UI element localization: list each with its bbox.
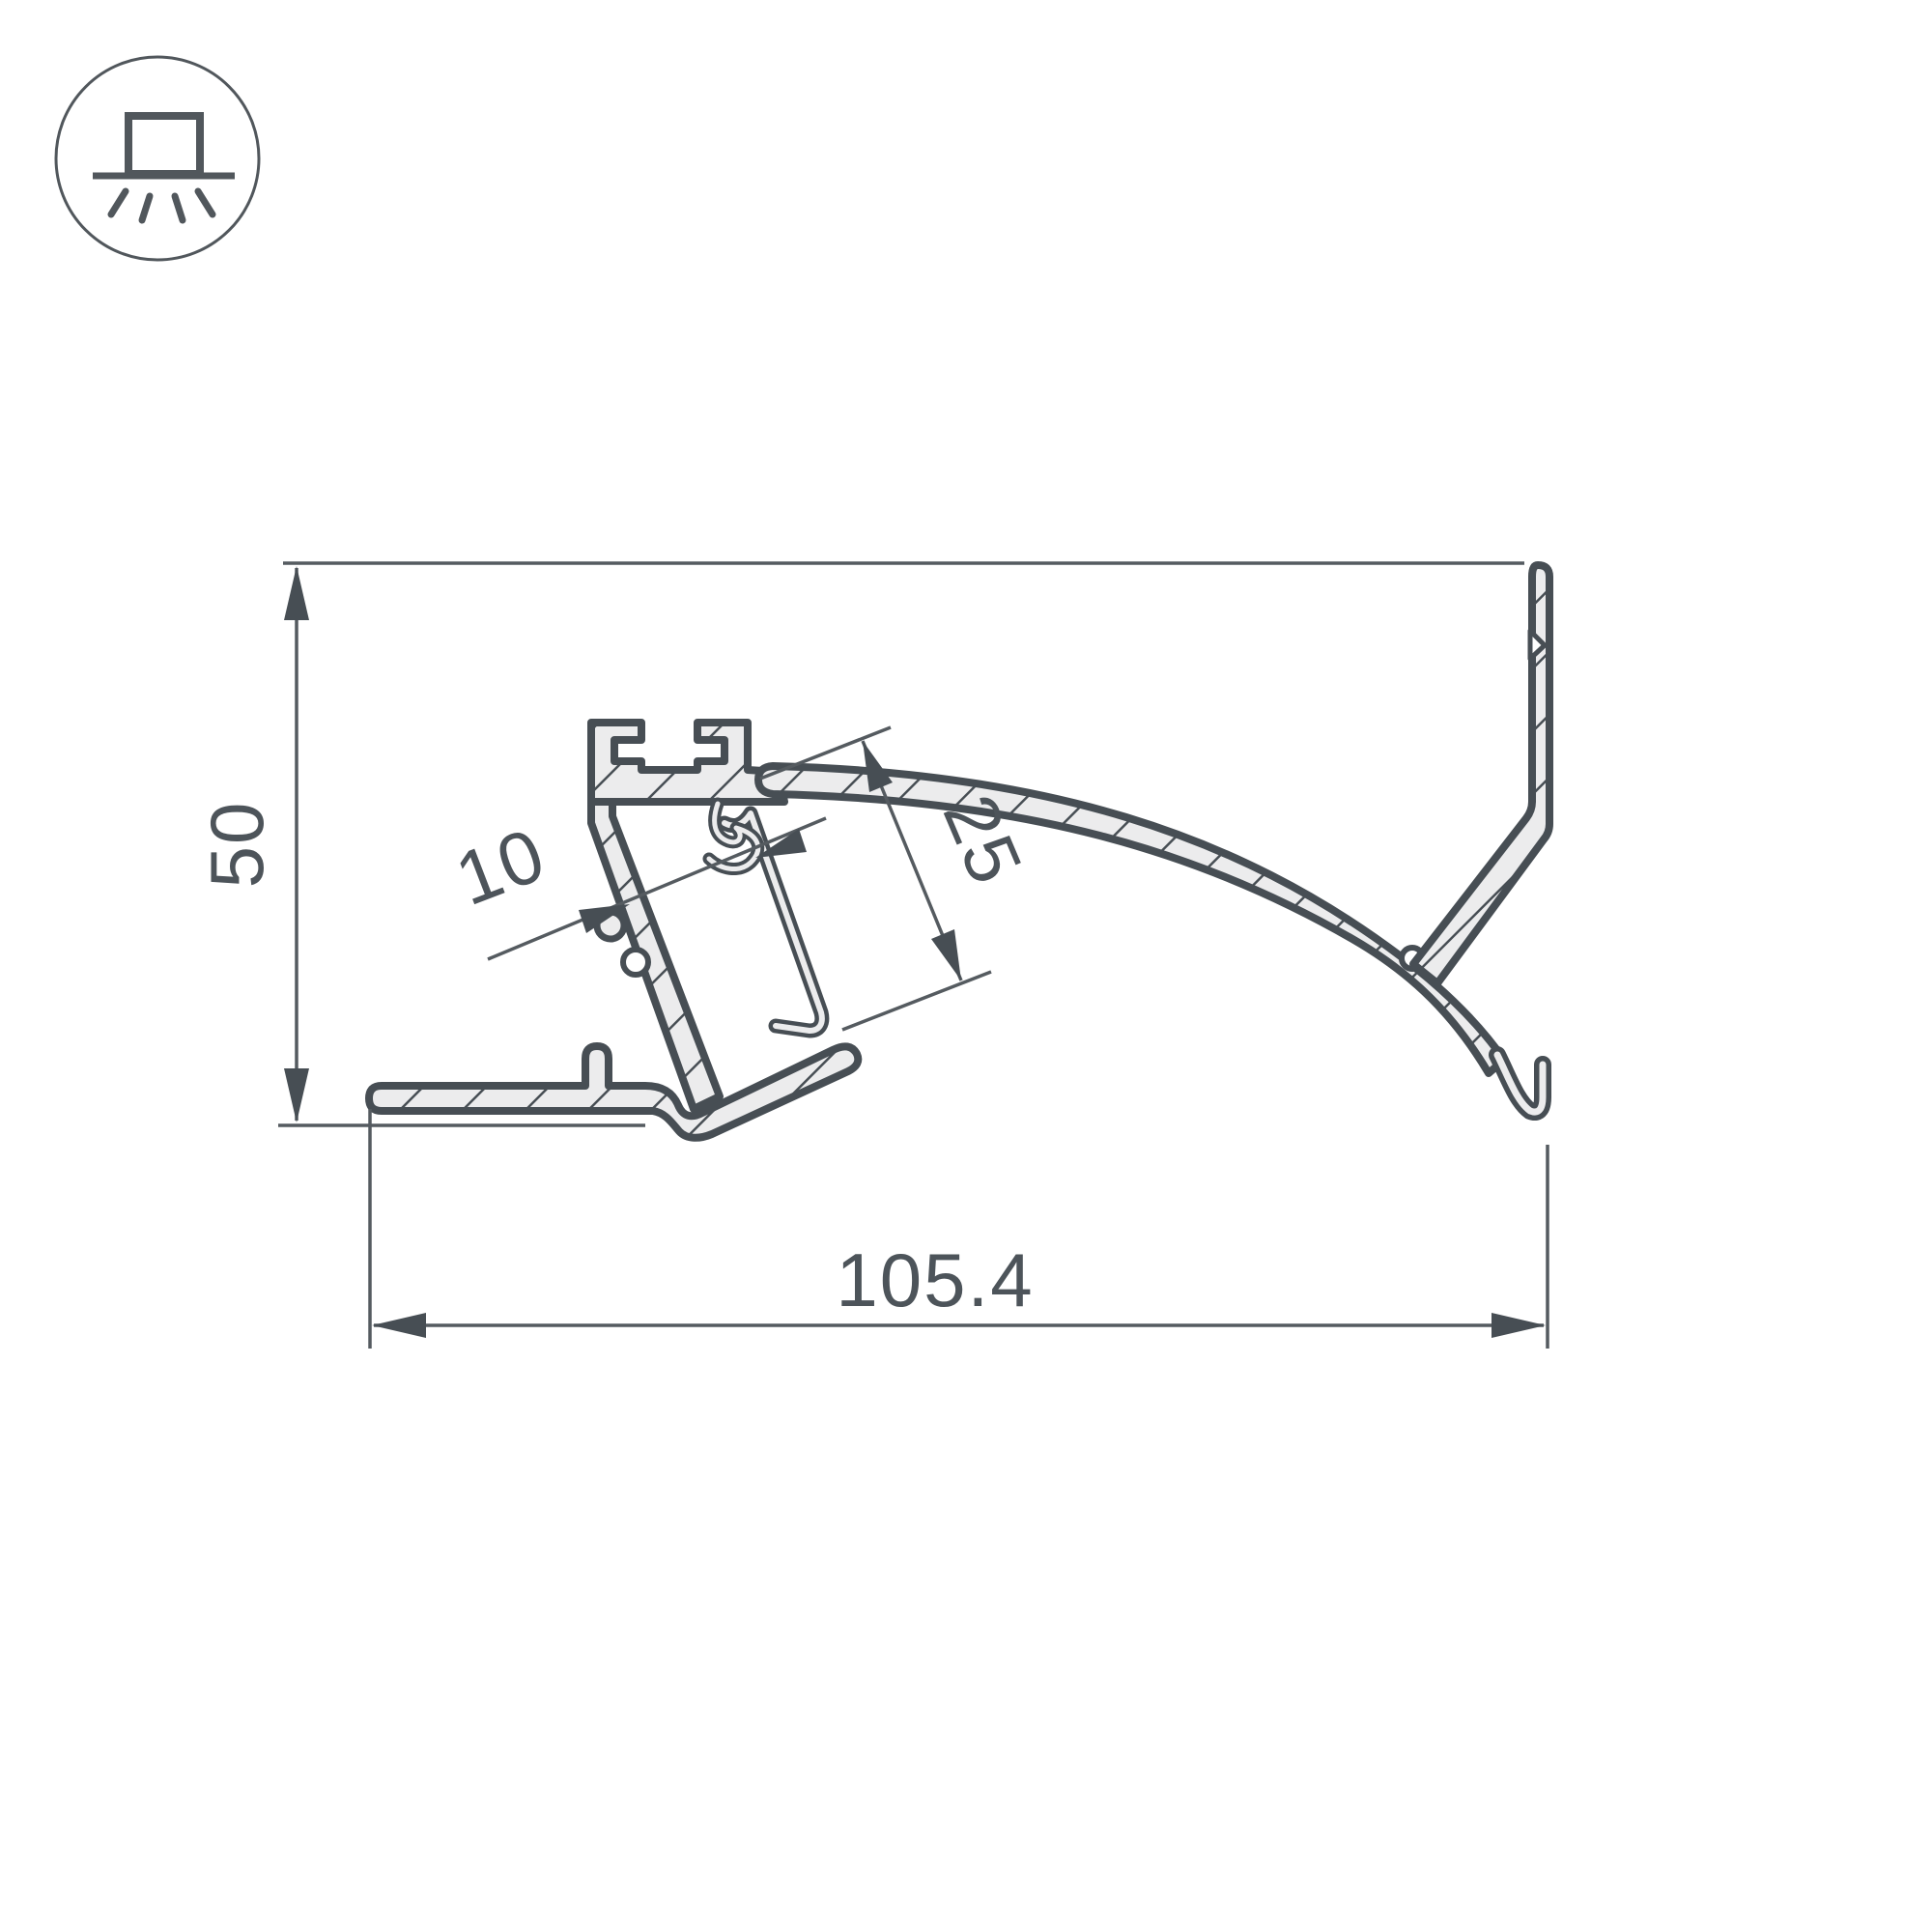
arrow-down-icon — [931, 929, 961, 980]
arrow-up-icon — [284, 566, 309, 620]
wing-end-hook — [1497, 1055, 1543, 1112]
light-rays — [111, 191, 213, 220]
dim-label-height: 50 — [194, 801, 279, 889]
profile-drawing: 50 105.4 25 10 — [0, 0, 1932, 1932]
arrow-down-icon — [284, 1068, 309, 1122]
dim-label-width: 105.4 — [836, 1237, 1034, 1322]
curved-wing-section — [758, 766, 1504, 1073]
drawing-canvas: 50 105.4 25 10 — [0, 0, 1932, 1932]
right-flange-section — [1413, 565, 1549, 983]
dim-label-channel: 10 — [444, 810, 556, 922]
top-bracket-section — [591, 723, 784, 802]
surface-mounted-light-icon — [56, 57, 259, 260]
extension-line-bottom — [842, 972, 991, 1030]
fixture-body-shape — [128, 116, 200, 174]
arrow-right-icon — [1492, 1313, 1546, 1338]
snap-notch — [623, 950, 648, 975]
arrow-left-icon — [372, 1313, 426, 1338]
